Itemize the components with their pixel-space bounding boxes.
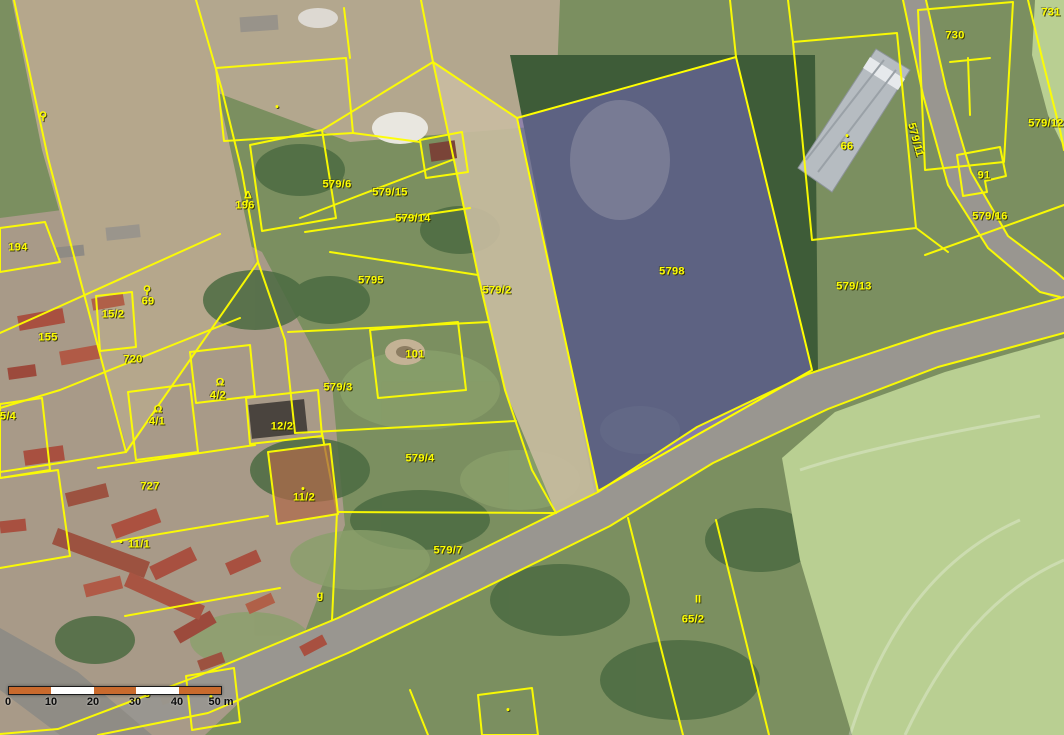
scrub-symbol: II	[695, 595, 701, 606]
parcel-label: 12/2	[271, 422, 294, 433]
parcel-label: 579/2	[482, 286, 511, 297]
parcel-label: 579/13	[836, 282, 871, 293]
parcel-label: 65/2	[682, 615, 705, 626]
dot-symbol: ●	[506, 707, 510, 714]
parcel-label: 727	[140, 482, 159, 493]
dot-symbol: ●	[119, 539, 123, 546]
parcel-label: 5798	[659, 267, 685, 278]
parcel-label: 730	[945, 31, 964, 42]
parcel-label: 155	[38, 333, 57, 344]
parcel-label: 579/14	[395, 214, 430, 225]
parcel-label: 731	[1041, 8, 1060, 19]
dot-symbol: ●	[209, 694, 213, 701]
parcel-label: 4/1	[149, 417, 165, 428]
parcel-label: 720	[123, 355, 142, 366]
parcel-label: 15/2	[102, 310, 125, 321]
parcel-label: 4/2	[210, 391, 226, 402]
parcel-label: 579/6	[322, 180, 351, 191]
parcel-label: 579/16	[972, 212, 1007, 223]
g-symbol: g	[144, 687, 151, 698]
g-symbol: g	[317, 591, 324, 602]
omega-symbol: Ω	[154, 405, 163, 416]
parcel-label: 579/4	[405, 454, 434, 465]
parcel-label: 194	[8, 243, 27, 254]
dot-symbol: ●	[301, 486, 305, 493]
parcel-label: 91	[978, 171, 991, 182]
parcel-label: 69	[142, 297, 155, 308]
parcel-label: 11/2	[293, 493, 315, 504]
map-canvas	[0, 0, 1064, 735]
omega-symbol: Ω	[216, 378, 225, 389]
parcel-label: 579/7	[433, 546, 462, 557]
well-symbol: ⚲	[143, 286, 151, 297]
triangle-symbol: Δ	[244, 191, 252, 202]
map-viewport[interactable]: 731730579/11579/1291579/1666579/13579857…	[0, 0, 1064, 735]
parcel-label: 5795	[358, 276, 384, 287]
pin-symbol: ⚲	[39, 112, 47, 123]
parcel-label: 579/3	[323, 383, 352, 394]
parcel-label: 66	[841, 142, 854, 153]
parcel-label: 579/15	[372, 188, 407, 199]
dot-symbol: ●	[845, 133, 849, 140]
parcel-label: 196	[235, 201, 254, 212]
parcel-label: 5/4	[0, 412, 16, 423]
parcel-label: 11/1	[128, 540, 150, 551]
parcel-label: 101	[405, 350, 424, 361]
dot-symbol: ●	[275, 104, 279, 111]
parcel-label: 579/12	[1028, 119, 1063, 130]
